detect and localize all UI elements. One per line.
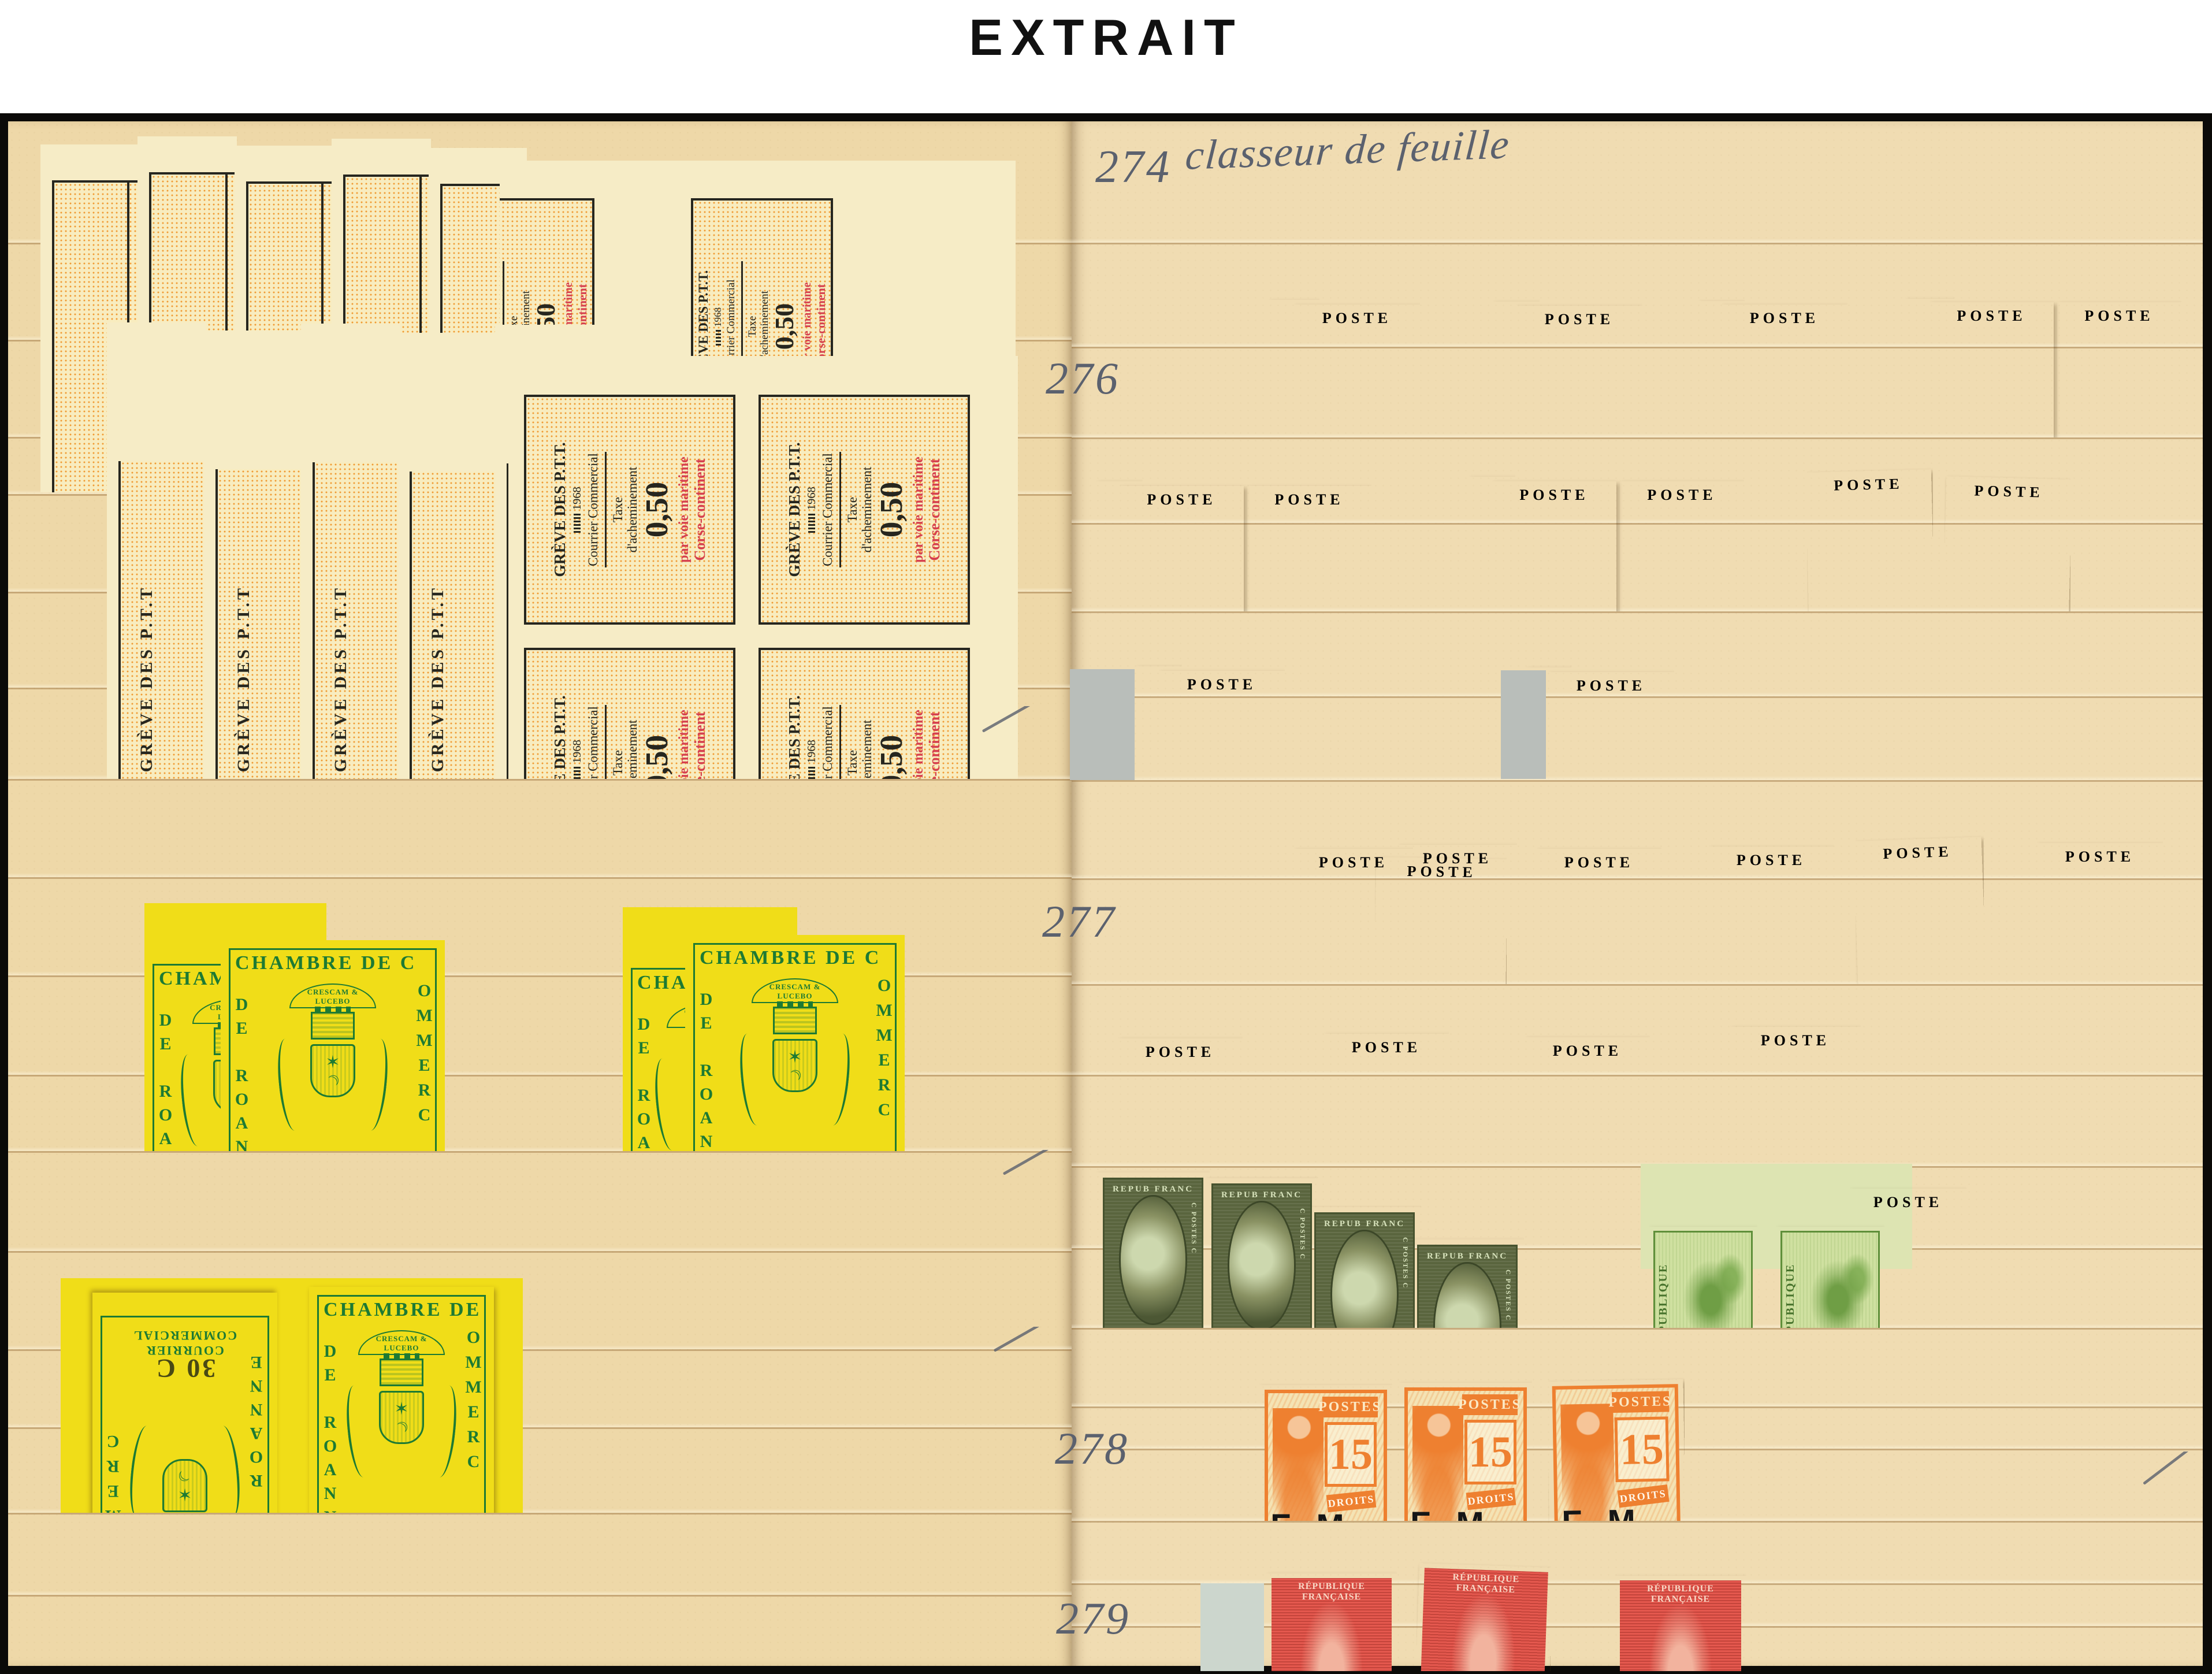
sage-brown-stamp: POSTE	[1730, 1023, 1861, 1166]
handwritten-lot-number: 277	[1042, 896, 1158, 959]
chambre-left-text: DE ROANNE	[232, 995, 251, 1151]
album-strip-line	[1072, 1166, 2203, 1168]
pencil-slash-mark	[982, 706, 1035, 736]
album-strip-line	[8, 1595, 1072, 1597]
pencil-slash-mark	[1003, 1150, 1054, 1179]
star-icon: ✶	[787, 1049, 802, 1066]
shield-icon: ✶☾	[772, 1039, 817, 1092]
fm-overprint: F. M.	[1410, 1505, 1500, 1521]
greve-stamp-sheet: GRÈVE DES P.T.T. 1968 Courrier Commercia…	[508, 356, 1018, 779]
chambre-left-text: DE ROANNE	[320, 1342, 340, 1513]
sage-brown-stamp: POSTE	[1375, 854, 1507, 984]
sage-black-stamp: POSTE	[1945, 474, 2070, 611]
ceres-stamp: REPUB FRANC C POSTES C	[1096, 1168, 1210, 1328]
shield-icon: ✶☾	[310, 1044, 355, 1097]
album-strip-line	[1072, 611, 2203, 613]
crescent-icon: ☾	[785, 1065, 805, 1085]
pencil-slash-mark	[994, 1327, 1044, 1356]
shield-icon: ✶☾	[379, 1391, 424, 1444]
fm-overprint: F. M.	[1560, 1502, 1653, 1521]
sage-brown-stamp: POSTE	[1118, 1034, 1243, 1166]
crescent-icon: ☾	[175, 1467, 195, 1487]
album-strip-line	[1072, 243, 2203, 244]
greve-sheet: GRÈVE DES P.T.T	[398, 333, 497, 779]
sage-black-stamp: POSTE POSTE	[1120, 482, 1371, 611]
stamp-items-layer: GRÈVE DES P.T.T. 1968 Courrier Commercia…	[0, 0, 2212, 1674]
sage-brown-stamp: POSTE	[1856, 835, 1984, 984]
handwritten-lot-number: 278	[1055, 1423, 1170, 1486]
star-icon: ✶	[394, 1401, 408, 1418]
sage-black-stamp: POSTE	[1294, 300, 1420, 437]
marianne-figure	[1412, 1406, 1463, 1521]
chambre-de-commerce-stamp: CHAMBRE DE C DE ROANNE OMMERC CRESCAM & …	[685, 935, 905, 1151]
album-strip-line	[1072, 1328, 2203, 1330]
chambre-tete-beche-pair: CHAMBRE DE C DE ROANNE OMMERC CRESCAM & …	[61, 1278, 523, 1513]
star-icon: ✶	[325, 1054, 340, 1071]
album-strip-line	[1072, 437, 2203, 439]
sage-black-stamp: POSTE	[1516, 302, 1642, 437]
mouchon-fm-stamp: POSTES15 DROITS F. M.	[1399, 1379, 1532, 1521]
star-icon: ✶	[177, 1485, 192, 1502]
sheet-margin-piece	[1070, 669, 1135, 780]
sage-brown-stamp: POSTE	[1324, 1030, 1449, 1166]
greve-sheet: GRÈVE DES P.T.T	[107, 322, 206, 779]
album-strip-line	[1072, 780, 2203, 782]
greve-sheet: GRÈVE DES P.T.T	[204, 331, 303, 779]
sage-green-stamp: POSTE	[1850, 1185, 1966, 1328]
sage-black-stamp: POSTE POSTE	[1930, 298, 2181, 437]
coat-of-arms: CRESCAM & LUCEBO ✶☾	[358, 1330, 445, 1444]
album-strip-line	[8, 1251, 1072, 1253]
tower-icon	[311, 1012, 355, 1040]
chambre-top-text: CHAMBRE DE C	[235, 952, 432, 974]
shield-icon: ✶☾	[162, 1459, 207, 1512]
ceres-stamp: REPUB FRANC C POSTES C	[1308, 1203, 1421, 1328]
pencil-slash-mark	[2143, 1452, 2192, 1489]
sage-brown-stamp: POSTE	[1537, 845, 1661, 984]
sage-brown-stamp: POSTE	[2037, 839, 2163, 984]
sage-black-stamp: POSTE	[1807, 467, 1933, 611]
sage-black-stamp: POSTE	[1722, 300, 1847, 437]
chambre-top-text: CHAMBRE DE C	[700, 947, 891, 969]
chambre-left-text: DE ROANNE	[696, 990, 716, 1151]
scan-canvas: EXTRAIT GRÈVE DES P.T.T. 1968 Courrier C…	[0, 0, 2212, 1674]
sage-brown-stamp: POSTE	[1525, 1033, 1650, 1166]
sage-black-stamp: POSTE	[1159, 667, 1285, 780]
sage-black-stamp: POSTE POSTE	[1492, 477, 1744, 611]
marianne-figure	[1273, 1408, 1324, 1521]
coat-of-arms: CRESCAM & LUCEBO ✶☾	[752, 978, 838, 1092]
semeuse-fm-stamp: RÉPUBLIQUE FRANÇAISE F. M.	[1615, 1572, 1746, 1671]
coat-of-arms: CRESCAM & LUCEBO ✶☾	[289, 983, 376, 1097]
chambre-right-text: OMMERC	[874, 976, 894, 1151]
sheet-margin-piece	[1200, 1583, 1264, 1671]
chambre-right-text: OMMERC	[414, 981, 434, 1151]
tower-icon	[773, 1007, 817, 1034]
fm-overprint: F. M.	[1270, 1507, 1360, 1521]
chambre-right-text: OMMERC	[463, 1328, 483, 1513]
ceres-stamp: REPUB FRANC C POSTES C	[1205, 1174, 1318, 1328]
chambre-de-commerce-stamp: CHAMBRE DE C DE ROANNE OMMERC CRESCAM & …	[221, 940, 445, 1151]
crescent-icon: ☾	[323, 1070, 343, 1090]
semeuse-fm-stamp: RÉPUBLIQUE FRANÇAISE F. M.	[1266, 1569, 1397, 1671]
album-strip-line	[8, 1151, 1072, 1153]
coat-of-arms: CRESCAM & LUCEBO ✶☾	[142, 1459, 228, 1513]
chambre-left-text: DE ROANNE	[634, 1015, 653, 1151]
crescent-icon: ☾	[392, 1417, 412, 1437]
album-strip-line	[1072, 984, 2203, 986]
album-strip-line	[8, 779, 1072, 781]
handwritten-lot-number: 279	[1056, 1593, 1172, 1656]
blanc-stamp: RÉPUBLIQUE	[1649, 1223, 1757, 1328]
sage-black-stamp: POSTE	[1548, 668, 1674, 780]
mouchon-fm-stamp: POSTES15 DROITS F. M.	[1548, 1376, 1685, 1521]
album-strip-line	[8, 1513, 1072, 1515]
album-strip-line	[8, 877, 1072, 879]
chambre-left-text: DE ROANNE	[155, 1011, 175, 1151]
tower-icon	[380, 1358, 423, 1386]
semeuse-fm-stamp: RÉPUBLIQUE FRANÇAISE F. M.	[1417, 1561, 1551, 1671]
chambre-top-text: CHAMBRE DE C	[324, 1299, 481, 1321]
album-strip-line	[1072, 1521, 2203, 1523]
greve-sheet: GRÈVE DES P.T.T	[301, 324, 400, 779]
mouchon-fm-stamp: POSTES15 DROITS F. M.	[1259, 1381, 1392, 1521]
handwritten-lot-number: 276	[1046, 352, 1161, 416]
ceres-stamp: REPUB FRANC C POSTES C	[1411, 1235, 1524, 1328]
handwritten-note: classeur de feuille	[1185, 126, 1509, 195]
sage-brown-stamp: POSTE	[1709, 842, 1834, 984]
